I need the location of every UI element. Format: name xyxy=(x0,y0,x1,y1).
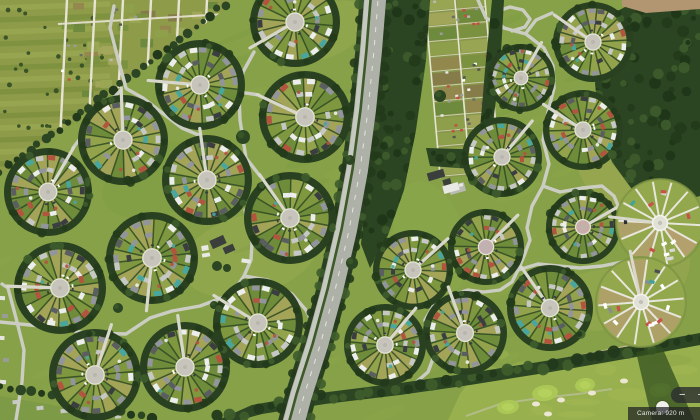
satellite-viewport[interactable]: − + Camera: 920 m xyxy=(0,0,700,420)
garden-circle xyxy=(345,306,423,386)
zoom-control[interactable]: − + xyxy=(671,387,700,403)
aerial-map-canvas[interactable] xyxy=(0,0,700,420)
garden-circle xyxy=(248,173,336,262)
attribution-bar: Camera: 920 m xyxy=(628,407,700,420)
attribution-text: Camera: 920 m xyxy=(637,410,684,417)
garden-circle xyxy=(372,233,454,309)
garden-circle xyxy=(543,91,621,169)
garden-circle xyxy=(506,267,591,348)
zoom-out-button[interactable]: − xyxy=(679,388,685,402)
